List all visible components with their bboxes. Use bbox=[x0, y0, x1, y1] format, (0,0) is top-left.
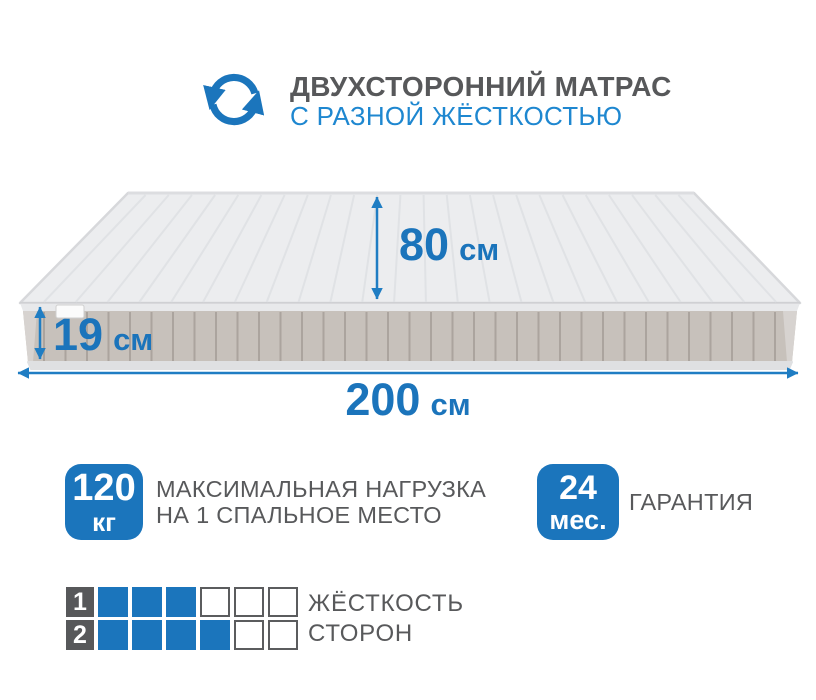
warranty-value: 24 bbox=[559, 471, 597, 505]
mattress-infographic: ДВУХСТОРОННИЙ МАТРАС С РАЗНОЙ ЖЁСТКОСТЬЮ bbox=[0, 0, 816, 700]
warranty-badge: 24 мес. bbox=[537, 464, 619, 540]
firmness-label: ЖЁСТКОСТЬ СТОРОН bbox=[308, 589, 464, 649]
max-load-value: 120 bbox=[72, 469, 135, 507]
firmness-square-filled bbox=[132, 587, 162, 617]
firmness-square-empty bbox=[234, 620, 264, 650]
firmness-side-number: 2 bbox=[66, 620, 94, 650]
firmness-square-filled bbox=[200, 620, 230, 650]
width-dimension-label: 80 см bbox=[399, 222, 499, 267]
mattress-piping-top bbox=[20, 303, 800, 311]
length-dimension-label: 200 см bbox=[0, 377, 816, 422]
product-subtitle: С РАЗНОЙ ЖЁСТКОСТЬЮ bbox=[290, 101, 622, 132]
firmness-square-empty bbox=[200, 587, 230, 617]
firmness-indicator: 12 bbox=[66, 587, 298, 653]
max-load-caption-line2: НА 1 СПАЛЬНОЕ МЕСТО bbox=[156, 503, 486, 529]
warranty-caption: ГАРАНТИЯ bbox=[629, 490, 753, 516]
thickness-unit: см bbox=[113, 324, 153, 355]
firmness-label-line2: СТОРОН bbox=[308, 619, 464, 649]
length-value: 200 bbox=[345, 377, 420, 422]
length-unit: см bbox=[430, 389, 470, 420]
warranty-unit: мес. bbox=[549, 507, 606, 534]
rotate-arrows-icon bbox=[200, 64, 268, 134]
max-load-badge: 120 кг bbox=[65, 464, 143, 540]
warranty-caption-line1: ГАРАНТИЯ bbox=[629, 490, 753, 516]
firmness-square-filled bbox=[98, 620, 128, 650]
firmness-square-filled bbox=[166, 587, 196, 617]
firmness-row-side-1: 1 bbox=[66, 587, 298, 617]
firmness-square-filled bbox=[166, 620, 196, 650]
max-load-caption: МАКСИМАЛЬНАЯ НАГРУЗКА НА 1 СПАЛЬНОЕ МЕСТ… bbox=[156, 477, 486, 528]
firmness-square-empty bbox=[268, 620, 298, 650]
product-title: ДВУХСТОРОННИЙ МАТРАС bbox=[290, 71, 672, 103]
max-load-caption-line1: МАКСИМАЛЬНАЯ НАГРУЗКА bbox=[156, 477, 486, 503]
mattress-piping-bottom bbox=[28, 362, 792, 369]
max-load-unit: кг bbox=[92, 509, 116, 535]
width-unit: см bbox=[459, 234, 499, 265]
width-value: 80 bbox=[399, 222, 449, 267]
firmness-square-filled bbox=[132, 620, 162, 650]
thickness-dimension-label: 19 см bbox=[53, 312, 153, 357]
firmness-side-number: 1 bbox=[66, 587, 94, 617]
firmness-square-empty bbox=[268, 587, 298, 617]
firmness-label-line1: ЖЁСТКОСТЬ bbox=[308, 589, 464, 619]
thickness-value: 19 bbox=[53, 312, 103, 357]
firmness-row-side-2: 2 bbox=[66, 620, 298, 650]
firmness-square-filled bbox=[98, 587, 128, 617]
firmness-square-empty bbox=[234, 587, 264, 617]
